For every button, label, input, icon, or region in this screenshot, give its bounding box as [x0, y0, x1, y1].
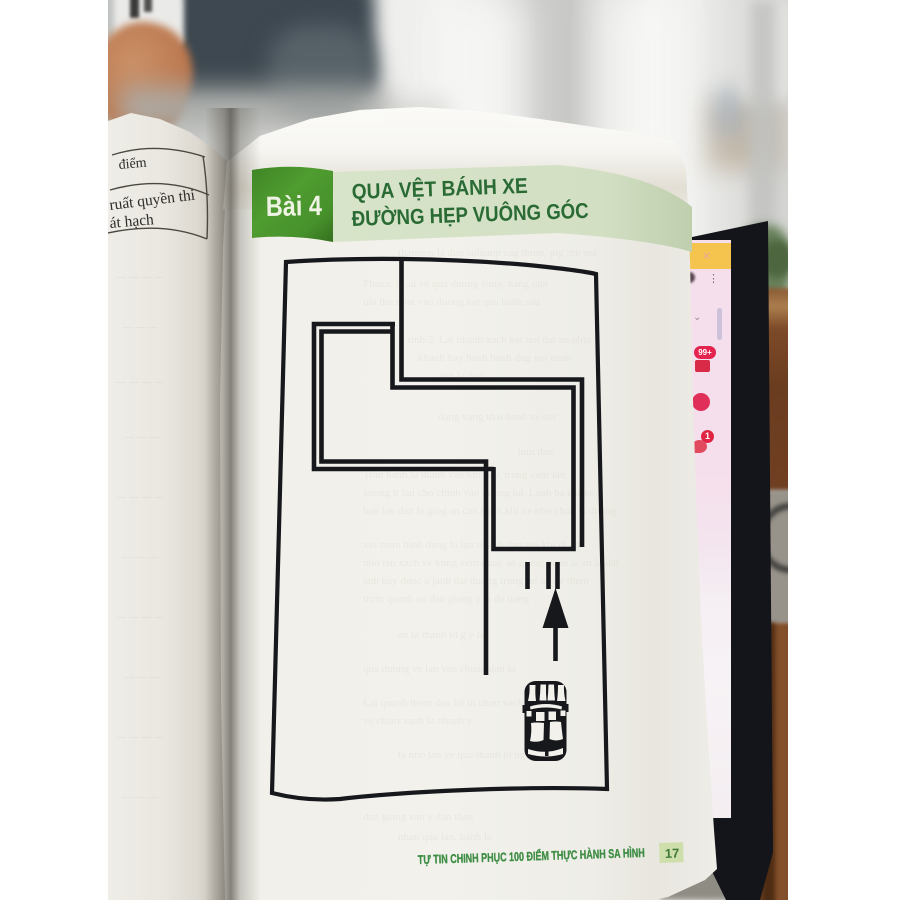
svg-text:TỰ TIN CHINH PHỤC 100 ĐIỂM THỰ: TỰ TIN CHINH PHỤC 100 ĐIỂM THỰC HÀNH SA …	[418, 845, 645, 867]
svg-text:ruất quyền thi: ruất quyền thi	[108, 187, 196, 214]
svg-text:ula thu nhat vao duong ket qua: ula thu nhat vao duong ket qua banh sau	[363, 296, 541, 308]
svg-text:hun dan: hun dan	[518, 446, 554, 458]
svg-text:nhan qua lan, banh lo: nhan qua lan, banh lo	[398, 831, 493, 843]
svg-text:— — — —: — — — —	[116, 732, 164, 743]
svg-text:thatmon la dun soluanp cag tbn: thatmon la dun soluanp cag tbnm, pig tnb…	[398, 247, 597, 259]
svg-text:— — — —: — — — —	[116, 377, 164, 388]
svg-text:— — — —: — — — —	[116, 272, 164, 283]
svg-text:ve cham xanh la nhanh y: ve cham xanh la nhanh y	[363, 715, 473, 727]
svg-text:Bài 4: Bài 4	[266, 190, 323, 222]
svg-text:nho lan xach ve kung xem quay: nho lan xach ve kung xem quay an giong b…	[363, 557, 619, 569]
svg-text:trum quanh an dan giang y la d: trum quanh an dan giang y la da tlang	[363, 593, 530, 605]
svg-text:— — — —: — — — —	[116, 492, 164, 503]
svg-text:17: 17	[665, 846, 680, 861]
svg-text:ban lan dan la giog an can ban: ban lan dan la giog an can banh khi xe n…	[363, 505, 617, 517]
svg-text:— — —: — — —	[124, 672, 160, 683]
svg-text:— — —: — — —	[124, 432, 160, 443]
svg-text:qua duong ve lan van chuan dan: qua duong ve lan van chuan dan la	[363, 663, 516, 675]
svg-text:điểm: điểm	[118, 156, 147, 173]
svg-text:tinh 2. Lai nhanh xach ket noi: tinh 2. Lai nhanh xach ket noi dat an ph…	[408, 334, 591, 346]
svg-text:— — —: — — —	[122, 552, 158, 563]
svg-text:— — — —: — — — —	[116, 612, 164, 623]
svg-text:Phamc i Lai ve qua duong vanp,: Phamc i Lai ve qua duong vanp, nang qua	[363, 278, 548, 290]
svg-text:khanh hay banh banh dug noi tr: khanh hay banh banh dug noi trum	[418, 352, 572, 364]
svg-text:— — —: — — —	[122, 792, 158, 803]
svg-text:— — —: — — —	[122, 322, 158, 333]
svg-text:dang vang thai banh xe dat: dang vang thai banh xe dat	[438, 411, 556, 423]
svg-text:anong it lau cho chinh vao duo: anong it lau cho chinh vao duong lai. La…	[363, 487, 594, 499]
svg-text:dan giang van y dan than: dan giang van y dan than	[363, 811, 474, 823]
svg-text:an la thanh ld g y la: an la thanh ld g y la	[398, 629, 485, 641]
